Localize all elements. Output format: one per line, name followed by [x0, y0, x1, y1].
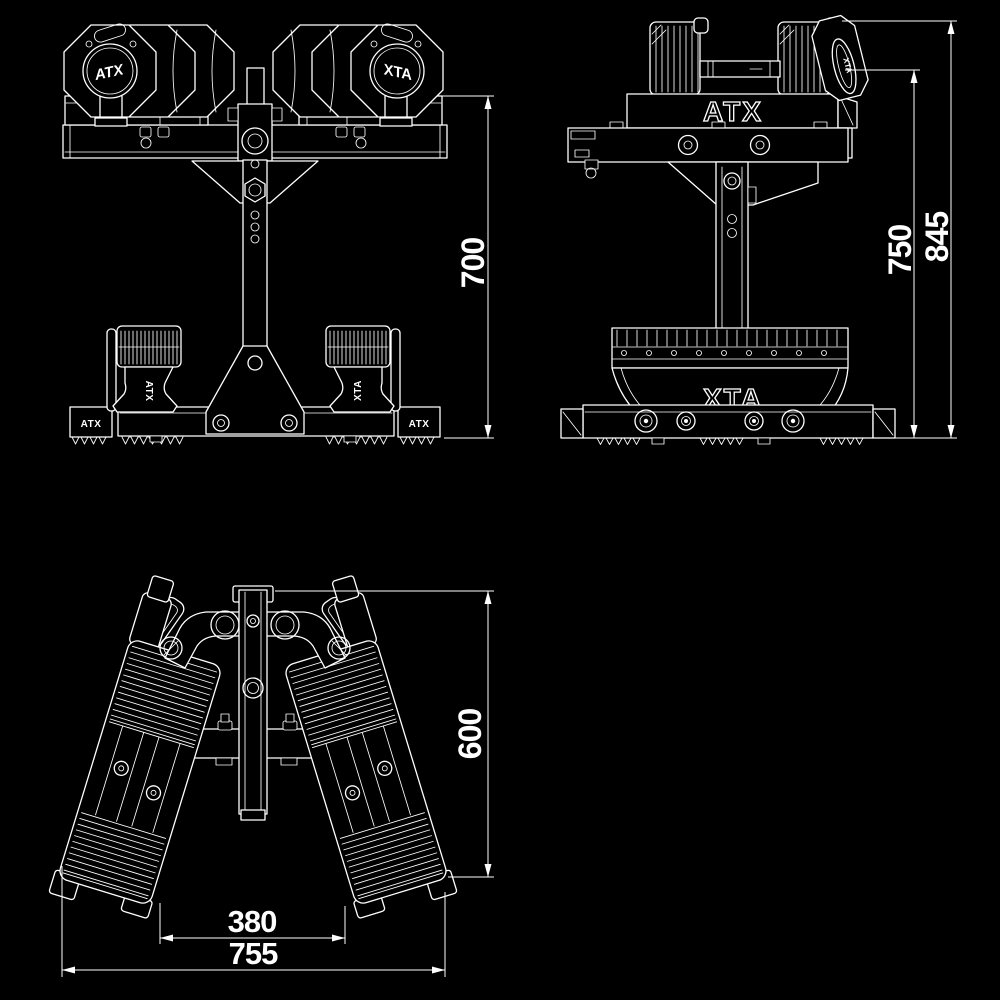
front-dumbbell-right [273, 22, 443, 126]
dim-845-label: 845 [919, 212, 955, 263]
side-base [561, 405, 895, 445]
dim-380-label: 380 [228, 904, 277, 939]
dim-755-label: 755 [229, 936, 278, 971]
atx-logo-base-right: ATX [409, 419, 430, 430]
drawing-canvas: ATX ATX [0, 0, 1000, 1000]
front-dumbbell-left [64, 22, 234, 126]
dim-600-label: 600 [452, 709, 488, 760]
dim-750-label: 750 [882, 225, 918, 276]
atx-logo-base-left: ATX [81, 419, 102, 430]
dim-700-label: 700 [455, 238, 491, 289]
top-column-bar [233, 586, 273, 820]
